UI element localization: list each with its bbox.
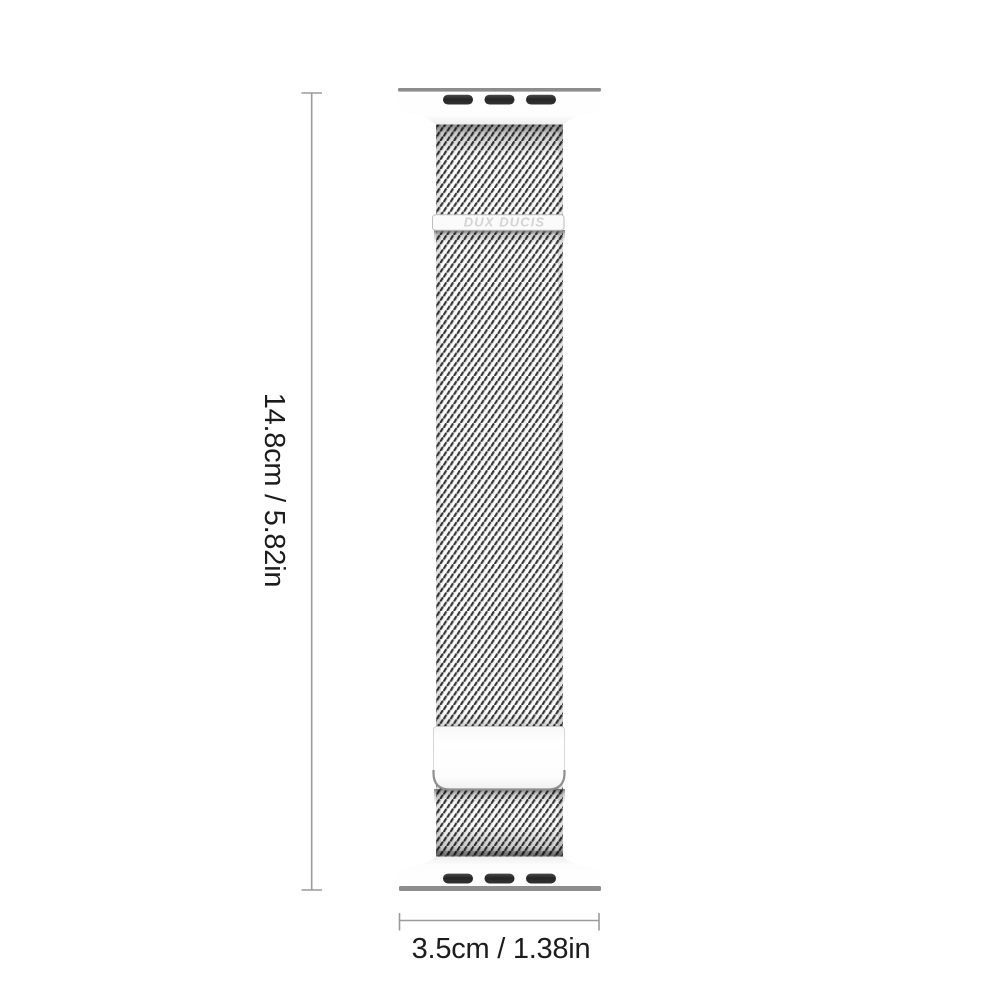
svg-text:3.5cm / 1.38in: 3.5cm / 1.38in xyxy=(412,933,591,965)
svg-text:14.8cm / 5.82in: 14.8cm / 5.82in xyxy=(258,393,290,588)
svg-text:DUX DUCIS: DUX DUCIS xyxy=(464,215,545,230)
